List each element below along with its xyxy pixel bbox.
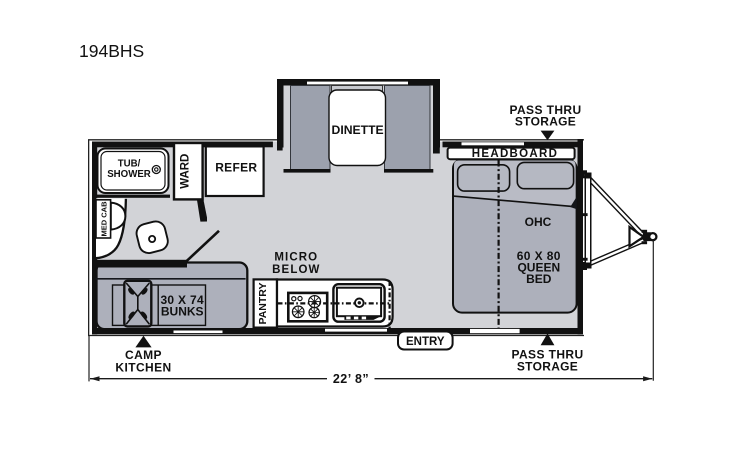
svg-text:HEADBOARD: HEADBOARD bbox=[472, 148, 558, 160]
svg-text:KITCHEN: KITCHEN bbox=[115, 361, 171, 375]
svg-text:PANTRY: PANTRY bbox=[257, 283, 269, 325]
svg-text:194BHS: 194BHS bbox=[79, 41, 144, 61]
svg-text:SHOWER: SHOWER bbox=[107, 169, 151, 180]
svg-text:DINETTE: DINETTE bbox=[332, 123, 384, 137]
svg-text:MICRO: MICRO bbox=[274, 251, 318, 263]
svg-text:ENTRY: ENTRY bbox=[406, 336, 445, 348]
svg-text:BELOW: BELOW bbox=[272, 264, 320, 276]
svg-text:TUB/: TUB/ bbox=[118, 158, 141, 169]
svg-text:REFER: REFER bbox=[215, 161, 257, 175]
svg-text:STORAGE: STORAGE bbox=[517, 359, 578, 373]
svg-text:OHC: OHC bbox=[525, 215, 552, 229]
svg-text:22’ 8”: 22’ 8” bbox=[333, 372, 369, 386]
svg-text:BUNKS: BUNKS bbox=[161, 305, 204, 319]
svg-text:MED CAB: MED CAB bbox=[100, 201, 109, 237]
svg-text:STORAGE: STORAGE bbox=[515, 114, 576, 128]
svg-text:WARD: WARD bbox=[179, 154, 191, 189]
svg-text:BED: BED bbox=[526, 272, 552, 286]
